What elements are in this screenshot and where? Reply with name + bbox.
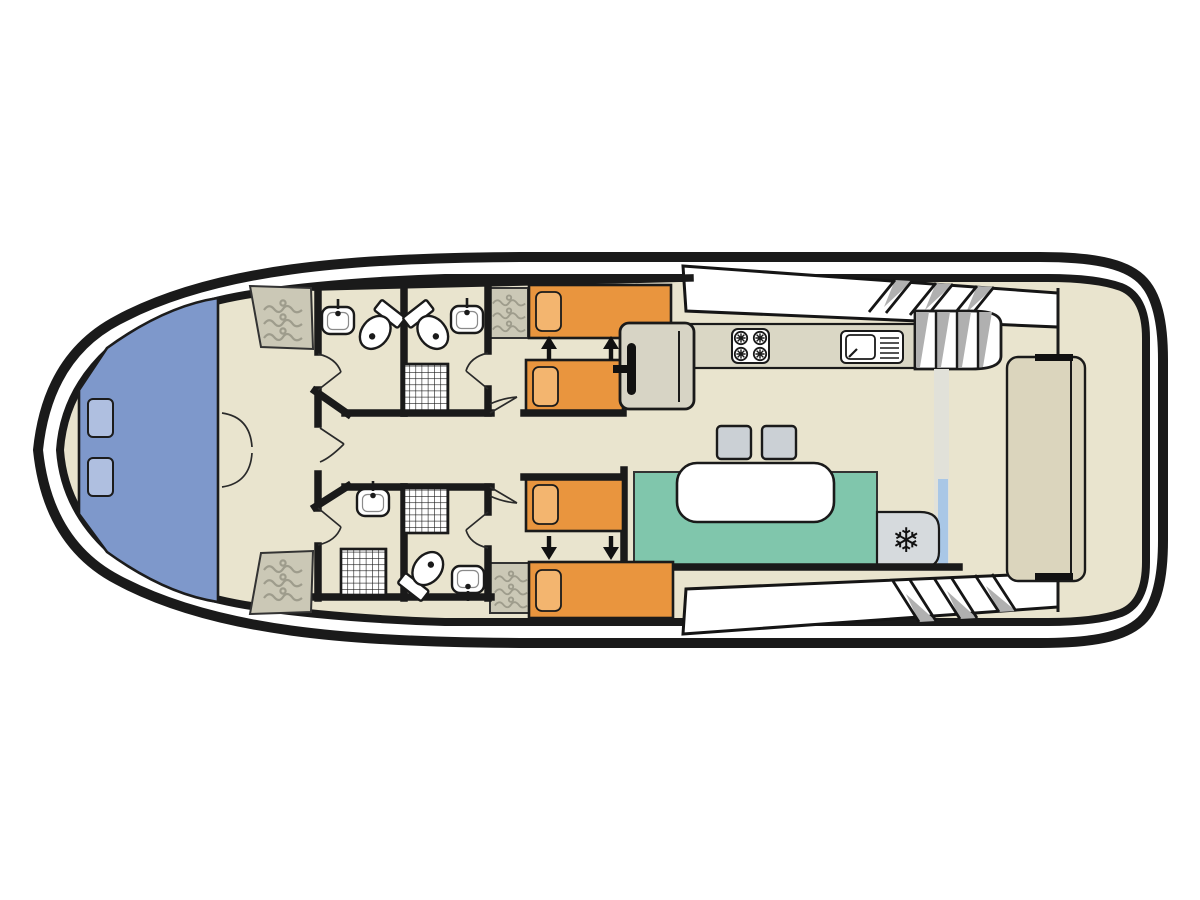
shower-grate	[404, 488, 448, 533]
galley-sink-icon	[841, 331, 903, 363]
snowflake-icon: ❄	[892, 521, 921, 561]
bow-hatch	[88, 399, 113, 437]
burner-icon	[754, 348, 766, 360]
door-threshold	[1035, 573, 1073, 580]
aft-bench	[1007, 357, 1085, 581]
burner-icon	[754, 332, 766, 344]
burner-icon	[735, 332, 747, 344]
shower-grate	[341, 549, 386, 595]
boat-floor-plan: ❄	[0, 0, 1200, 900]
steering-column-icon	[613, 365, 628, 373]
staircase	[915, 311, 1001, 369]
bow-hatch	[88, 458, 113, 496]
dinette-table	[677, 463, 834, 522]
pillow	[533, 485, 558, 524]
door-threshold	[1035, 354, 1073, 361]
stove-icon	[732, 329, 769, 363]
pillow	[536, 292, 561, 331]
shower-grate	[404, 364, 448, 411]
pillow	[533, 367, 558, 406]
helm-console	[613, 323, 694, 409]
steering-wheel-icon	[627, 343, 636, 395]
deck-plan-canvas: ❄	[0, 0, 1200, 900]
stool	[762, 426, 796, 459]
stool	[717, 426, 751, 459]
pillow	[536, 570, 561, 611]
burner-icon	[735, 348, 747, 360]
